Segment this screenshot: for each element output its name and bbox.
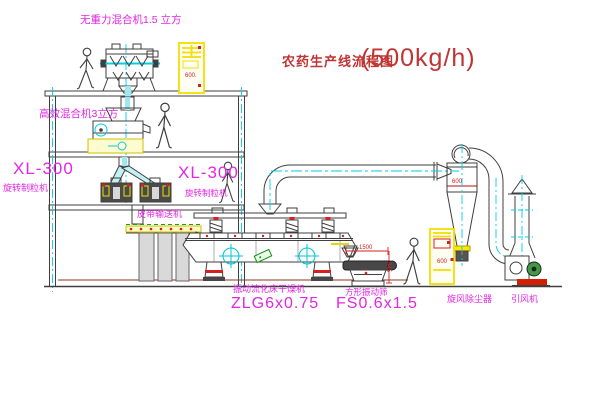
fan-drawing — [505, 256, 550, 286]
packer-cabinet — [179, 43, 204, 93]
fluid-bed-dryer-drawing — [183, 208, 358, 281]
dim-cyclone: 600 — [452, 179, 462, 185]
worker-roof — [77, 48, 94, 89]
label-granulator-right-name: 旋转制粒机 — [185, 189, 228, 198]
packer-panel-text: 600. — [185, 73, 197, 79]
cyclone-outlet-duct — [469, 148, 509, 264]
diagram-capacity: (500kg/h) — [361, 46, 476, 71]
dryer-feet — [203, 262, 333, 281]
label-granulator-right-model: XL-300 — [178, 164, 239, 181]
dim-sieve-height: 545 — [385, 262, 391, 272]
worker-ground — [404, 238, 421, 284]
worker-second-floor — [156, 103, 171, 148]
label-cyclone: 旋风除尘器 — [447, 295, 492, 304]
y-chute — [110, 166, 156, 184]
exhaust-duct — [259, 162, 459, 214]
label-granulator-left-model: XL-300 — [13, 160, 74, 177]
cabinet-panel-text: 600 — [437, 259, 447, 265]
dim-sieve-width: 1500 — [359, 245, 372, 251]
flow-diagram-canvas: 农药生产线流程图 (500kg/h) 无重力混合机1.5 立方 高效混合机3立方… — [0, 0, 600, 403]
spring-mounts — [210, 217, 334, 232]
label-dryer-name: 振动流化床干燥机 — [233, 285, 305, 294]
label-second-mixer: 高效混合机3立方 — [39, 109, 118, 120]
label-sieve-model: FS0.6x1.5 — [336, 296, 418, 312]
label-fan: 引风机 — [511, 295, 538, 304]
label-top-mixer: 无重力混合机1.5 立方 — [80, 15, 182, 26]
gravity-free-mixer-drawing — [100, 44, 160, 97]
control-cabinet — [430, 229, 454, 284]
label-belt-conveyor: 皮带输送机 — [137, 210, 182, 219]
label-dryer-model: ZLG6x0.75 — [231, 296, 319, 312]
label-granulator-left-name: 旋转制粒机 — [3, 184, 48, 193]
